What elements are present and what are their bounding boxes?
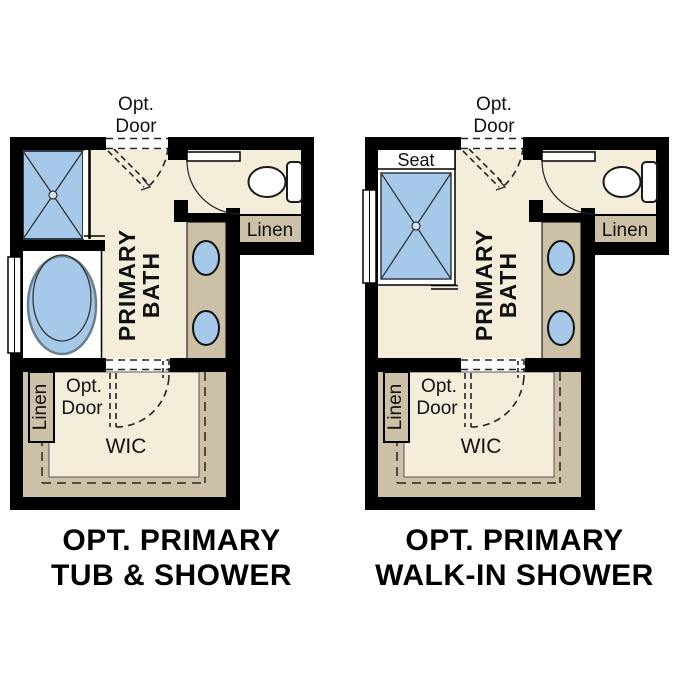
wic-label: WIC	[461, 435, 502, 458]
window	[363, 190, 376, 283]
opt-door-top-label-1: Opt.	[476, 94, 512, 115]
plan-tub-shower: Linen Linen	[0, 0, 343, 593]
room-label-primary: PRIMARY	[471, 229, 497, 341]
window	[8, 257, 21, 353]
linen-label: Linen	[247, 220, 294, 241]
seat-label: Seat	[397, 150, 434, 170]
wic-label: WIC	[106, 435, 147, 458]
wic-linen-label: Linen	[30, 384, 51, 431]
opt-door-top-label-1: Opt.	[118, 94, 154, 115]
wic-linen-label: Linen	[385, 384, 406, 431]
room-label-bath: BATH	[495, 252, 521, 318]
linen-label: Linen	[602, 220, 649, 241]
shower-drain	[49, 191, 57, 199]
room-label-bath: BATH	[138, 252, 164, 318]
wic-door-label-2: Door	[61, 398, 103, 419]
wic-door-label-1: Opt.	[421, 376, 457, 397]
wic-door-label-2: Door	[416, 398, 458, 419]
floorplan-tub-shower: Linen Linen	[2, 85, 332, 515]
sink	[548, 311, 574, 345]
shower-drain	[412, 222, 420, 230]
bathtub	[23, 251, 102, 358]
caption-line: TUB & SHOWER	[0, 558, 343, 593]
caption-line: OPT. PRIMARY	[0, 523, 343, 558]
plan-walk-in-shower: Linen Linen Seat	[343, 0, 686, 593]
plan-caption-walk-in-shower: OPT. PRIMARY WALK-IN SHOWER	[343, 523, 686, 593]
sink	[193, 311, 219, 345]
wic-door-label-1: Opt.	[66, 376, 102, 397]
sink	[193, 241, 219, 275]
room-label-primary: PRIMARY	[114, 229, 140, 341]
opt-door-top-label-2: Door	[473, 116, 515, 137]
caption-line: WALK-IN SHOWER	[343, 558, 686, 593]
caption-line: OPT. PRIMARY	[343, 523, 686, 558]
opt-door-top-label-2: Door	[115, 116, 157, 137]
walk-in-shower	[377, 149, 458, 289]
floorplan-canvas: Linen Linen	[0, 0, 687, 593]
floorplan-walk-in-shower: Linen Linen Seat	[357, 85, 687, 515]
sink	[548, 241, 574, 275]
plan-caption-tub-shower: OPT. PRIMARY TUB & SHOWER	[0, 523, 343, 593]
